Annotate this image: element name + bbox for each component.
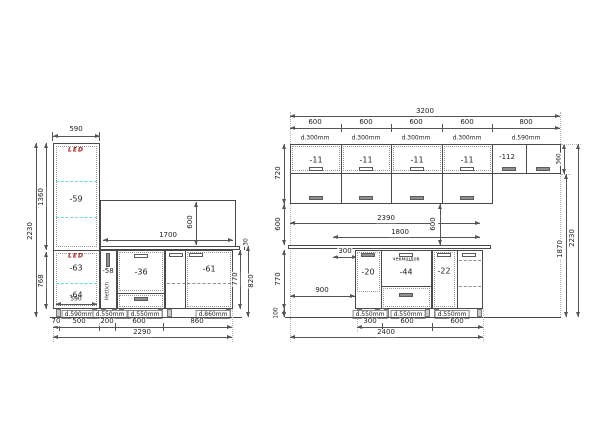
cabinet-label-63: -63 <box>69 264 82 273</box>
dim-label: 200 <box>99 318 114 326</box>
dim-line <box>566 174 567 317</box>
led-label-bottom: LED <box>67 254 85 261</box>
dim-line <box>53 337 232 338</box>
leg <box>167 309 172 317</box>
dim-line <box>290 337 483 338</box>
handle <box>399 293 413 297</box>
cabinet-label-11: -11 <box>410 156 423 165</box>
dim-line <box>46 252 47 309</box>
cabinet-label-36: -36 <box>134 268 147 277</box>
dim-line <box>578 144 579 317</box>
dim-label: 600 <box>449 318 464 326</box>
offset-label: 300 <box>337 248 352 256</box>
dim-line <box>290 223 480 224</box>
handle <box>460 167 474 171</box>
door-panel <box>434 252 455 307</box>
handle <box>134 297 148 301</box>
cabinet-label-59: -59 <box>69 195 82 204</box>
dim-line <box>333 257 357 258</box>
tick <box>163 323 164 331</box>
dim-label: 600 <box>131 318 146 326</box>
door-split-line <box>457 250 458 309</box>
cabinet-label-11: -11 <box>309 156 322 165</box>
shelf-line <box>459 260 481 261</box>
handle <box>359 167 373 171</box>
cabinet-label-20: -20 <box>361 268 374 277</box>
depth-label: d.300mm <box>351 136 382 143</box>
dim-line <box>56 304 97 305</box>
gap-dim-label: 600 <box>430 216 438 231</box>
dim-label: 600 <box>399 318 414 326</box>
handle <box>134 254 148 258</box>
base-height-label: 770 <box>275 271 283 286</box>
dim-label: 600 <box>459 119 474 127</box>
left-top-width-label: 590 <box>68 126 83 134</box>
extension-line <box>232 309 233 342</box>
dim-line <box>357 327 483 328</box>
cabinet-label-112: -112 <box>498 154 516 162</box>
handle <box>460 196 474 200</box>
dim-label: 800 <box>518 119 533 127</box>
small-annotation: чекмщдов <box>392 257 421 263</box>
extension-line <box>483 309 484 342</box>
shelf-line <box>459 286 481 287</box>
cabinet-label-11: -11 <box>460 156 473 165</box>
wall-height-label: 720 <box>275 165 283 180</box>
fridge-height-label: 360 <box>557 152 564 165</box>
floor-line <box>285 317 561 318</box>
cabinet-label-22: -22 <box>437 267 450 276</box>
handle <box>106 253 110 267</box>
drawer-line <box>381 286 432 287</box>
dim-label: 860 <box>189 318 204 326</box>
dim-line <box>284 204 285 245</box>
leg <box>425 309 430 317</box>
cabinet-divider <box>53 250 100 251</box>
right-total-width-label: 3200 <box>415 108 435 116</box>
dim-line <box>196 202 197 245</box>
dim-label: 600 <box>307 119 322 127</box>
open-span-label: 900 <box>314 287 329 295</box>
countertop <box>288 245 491 249</box>
handle <box>502 167 516 171</box>
tick <box>442 124 443 132</box>
total-bottom-label: 2400 <box>376 329 396 337</box>
upper-height-label: 1360 <box>38 187 46 207</box>
dim-line <box>284 309 285 317</box>
handle <box>536 167 550 171</box>
handle <box>361 253 375 257</box>
door-split-line <box>290 173 493 174</box>
panel-height-label: 600 <box>187 214 195 229</box>
counter-length-label: 2390 <box>376 215 396 223</box>
handle <box>309 196 323 200</box>
lower-height-label: 768 <box>38 273 46 288</box>
depth-label: d.300mm <box>452 136 483 143</box>
dim-line <box>53 136 100 137</box>
hettich-label: Hettich <box>105 281 111 301</box>
cabinet-label-58: -58 <box>101 268 114 276</box>
dim-line <box>46 143 47 250</box>
handle <box>410 196 424 200</box>
dim-line <box>290 128 560 129</box>
shelf-line <box>56 181 97 182</box>
depth-label: d.300mm <box>300 136 331 143</box>
depth-label: d.590mm <box>511 136 542 143</box>
led-label-top: LED <box>67 148 85 155</box>
dim-label: 300 <box>362 318 377 326</box>
dim-line <box>440 204 441 245</box>
rail-length-label: 1800 <box>390 229 410 237</box>
dim-line <box>564 144 565 174</box>
leg <box>477 309 482 317</box>
dim-line <box>240 250 241 309</box>
tick <box>391 124 392 132</box>
dim-line <box>333 237 480 238</box>
base-height-label: 770 <box>232 271 240 286</box>
dim-label: 70 <box>51 318 62 326</box>
plinth-height-label: 100 <box>274 306 281 319</box>
dim-line <box>284 144 285 204</box>
cabinet-label-61: -61 <box>202 265 215 274</box>
tick <box>341 124 342 132</box>
dim-line <box>36 143 37 317</box>
dim-label: 600 <box>358 119 373 127</box>
dim-label: 600 <box>408 119 423 127</box>
shelf-line <box>167 283 231 284</box>
dim-line <box>284 250 285 309</box>
handle <box>462 253 476 257</box>
gap-height-label: 600 <box>275 216 283 231</box>
cabinet-label-44: -44 <box>399 268 412 277</box>
leg <box>56 309 61 317</box>
inner-width-label: 590 <box>69 297 82 304</box>
panel-width-label: 1700 <box>158 232 178 240</box>
handle <box>189 253 203 257</box>
door-panel <box>187 252 231 307</box>
depth-label: d.300mm <box>401 136 432 143</box>
dim-line <box>290 296 355 297</box>
total-width-label: 2290 <box>132 329 152 337</box>
tick <box>432 323 433 331</box>
total-height-label: 2230 <box>27 221 35 241</box>
shelf-line <box>56 217 97 218</box>
dim-line <box>103 240 233 241</box>
drawer-line <box>117 293 165 294</box>
handle <box>410 167 424 171</box>
handle <box>437 253 451 257</box>
dim-label: 500 <box>71 318 86 326</box>
tick <box>492 124 493 132</box>
to-top-label: 1870 <box>557 239 565 259</box>
handle <box>309 167 323 171</box>
handle <box>169 253 183 257</box>
door-split-line <box>185 250 186 309</box>
handle <box>359 196 373 200</box>
base-total-height-label: 820 <box>248 273 256 288</box>
tick <box>115 323 116 331</box>
cabinet-label-11: -11 <box>359 156 372 165</box>
cabinet-elevation-drawing: 590 LED -59 LED -63 -64 590 2230 1360 76… <box>0 0 600 424</box>
drawer-panel <box>383 288 430 307</box>
dim-line <box>290 116 560 117</box>
extension-line <box>560 112 561 144</box>
right-total-height-label: 2230 <box>569 228 577 248</box>
door-split-line <box>526 144 527 174</box>
shelf-line <box>56 283 97 284</box>
